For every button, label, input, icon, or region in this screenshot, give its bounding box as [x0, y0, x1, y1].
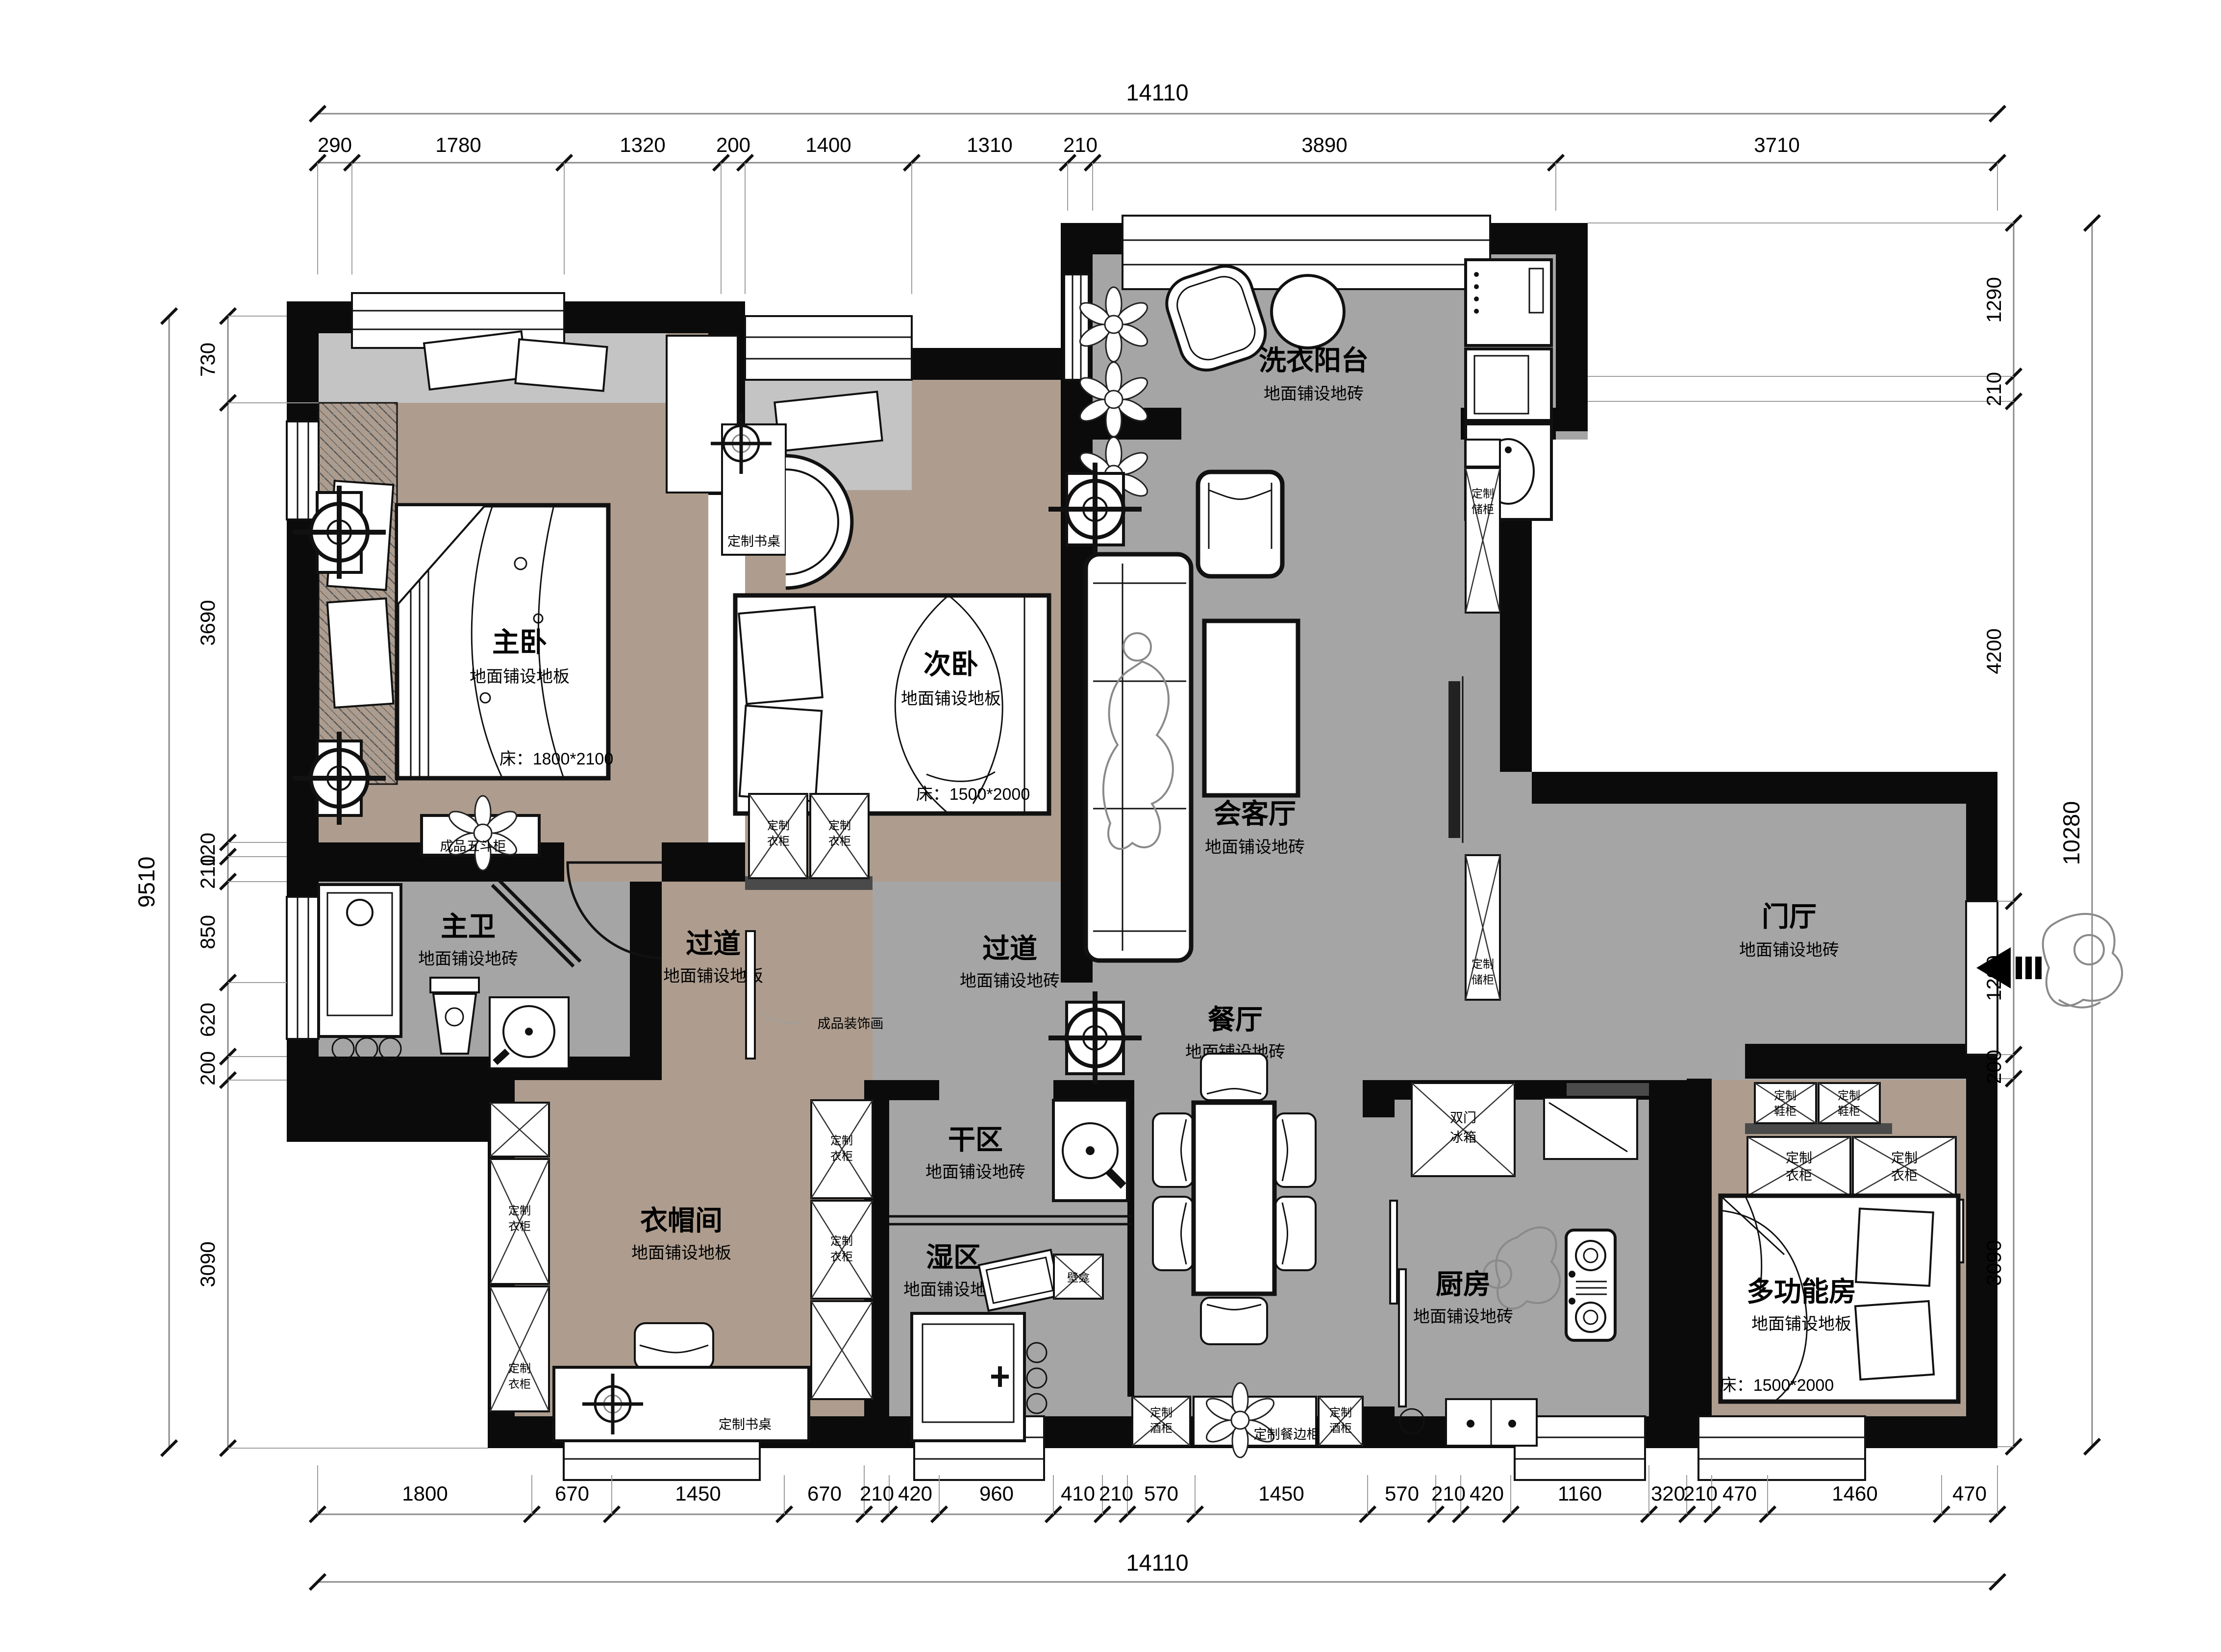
wardrobe-label: 定制 [767, 819, 790, 832]
svg-text:210: 210 [1982, 372, 2005, 406]
wine-cabinet-label: 定制 [1329, 1406, 1352, 1419]
room-floor-label: 地面铺设地板 [631, 1244, 731, 1262]
svg-text:960: 960 [979, 1482, 1014, 1505]
room-floor-label: 地面铺设地砖 [1739, 941, 1839, 960]
room-floor-label: 地面铺设地砖 [925, 1163, 1025, 1182]
bed-pillow [327, 598, 394, 708]
sliding-door [1399, 1269, 1406, 1406]
wardrobe-label: 衣柜 [1786, 1168, 1812, 1183]
svg-text:290: 290 [318, 133, 352, 156]
svg-text:3090: 3090 [196, 1241, 219, 1287]
wine-cabinet-label: 酒柜 [1150, 1422, 1173, 1434]
fridge-label: 冰箱 [1450, 1130, 1476, 1145]
svg-text:410: 410 [1061, 1482, 1095, 1505]
seat-pillow [515, 339, 607, 391]
svg-text:200: 200 [1982, 1050, 2005, 1084]
room-label: 过道 [686, 928, 741, 959]
dimension-bottom: 1800 670 1450 670 210 420 960 410 210 57… [310, 1465, 2005, 1590]
svg-text:570: 570 [1385, 1482, 1419, 1505]
room-label: 厨房 [1436, 1269, 1491, 1300]
svg-text:200: 200 [716, 133, 750, 156]
room-label: 次卧 [923, 649, 978, 680]
svg-text:570: 570 [1144, 1482, 1178, 1505]
room-label: 门厅 [1762, 901, 1817, 932]
wardrobe-label: 衣柜 [508, 1378, 531, 1390]
svg-text:1310: 1310 [967, 133, 1012, 156]
wine-cabinet-label: 酒柜 [1329, 1422, 1352, 1434]
balcony-left-window [1064, 274, 1089, 380]
room-floor-label: 地面铺设地板 [1751, 1315, 1851, 1333]
storage-label: 储柜 [1472, 973, 1494, 986]
bed-pillow [1855, 1301, 1934, 1380]
room-floor-label: 地面铺设地砖 [1205, 838, 1305, 857]
fridge-label: 双门 [1450, 1110, 1476, 1125]
wardrobe-label: 衣柜 [508, 1220, 531, 1233]
svg-text:1780: 1780 [435, 133, 481, 156]
dim-total-bottom: 14110 [1126, 1550, 1188, 1576]
bathtub [319, 885, 401, 1036]
svg-text:1320: 1320 [620, 133, 665, 156]
master-headboard-hatch [319, 403, 397, 784]
room-floor-label: 地面铺设地板 [470, 667, 570, 686]
svg-text:420: 420 [898, 1482, 932, 1505]
room-label: 湿区 [926, 1242, 981, 1273]
coffee-table [1204, 621, 1298, 795]
bed-pillow [739, 607, 823, 704]
svg-text:1450: 1450 [675, 1482, 721, 1505]
dim-total-top: 14110 [1126, 79, 1188, 105]
wardrobe-label: 衣柜 [828, 835, 851, 847]
bath-vanity [490, 997, 569, 1068]
shoe-cabinet-label: 鞋柜 [1838, 1105, 1860, 1117]
fridge: 双门 冰箱 [1412, 1083, 1515, 1176]
wardrobe-label: 定制 [828, 819, 851, 832]
room-label: 多功能房 [1747, 1276, 1856, 1307]
svg-text:210: 210 [1683, 1482, 1718, 1505]
floor-plan-page: 主卧 地面铺设地板 床：1800*2100 成品五斗柜 定制书桌 次卧 地面铺设… [0, 0, 2221, 1652]
svg-text:1450: 1450 [1258, 1482, 1304, 1505]
multi-bottom-window [1698, 1416, 1865, 1480]
seat-pillow [774, 392, 882, 451]
armchair [1198, 472, 1282, 576]
tv [1448, 681, 1460, 838]
dresser-label: 成品五斗柜 [440, 839, 506, 854]
dim-total-right: 10280 [2058, 801, 2084, 865]
svg-text:210: 210 [196, 855, 219, 889]
svg-text:320: 320 [1651, 1482, 1685, 1505]
cloak-wardrobe-left: 定制 衣柜 定制 衣柜 [490, 1103, 549, 1411]
shoe-cabinet-label: 定制 [1838, 1089, 1860, 1102]
shoe-cabinet-label: 定制 [1774, 1089, 1797, 1102]
room-floor-label: 地面铺设地砖 [1413, 1307, 1513, 1326]
storage-label: 储柜 [1472, 503, 1494, 516]
shoe-cabinet-counter [1745, 1123, 1892, 1134]
desk-label: 定制书桌 [727, 534, 780, 549]
room-label: 主卫 [441, 911, 496, 942]
room-label: 衣帽间 [640, 1205, 723, 1236]
svg-text:4200: 4200 [1982, 628, 2005, 674]
svg-text:1400: 1400 [805, 133, 851, 156]
wardrobe-label: 定制 [830, 1234, 853, 1247]
master-left-window [287, 421, 319, 519]
room-floor-label: 地面铺设地板 [901, 690, 1001, 708]
bed-size-label: 床：1500*2000 [916, 785, 1030, 804]
room-label: 干区 [948, 1124, 1003, 1155]
wardrobe-label: 定制 [830, 1134, 853, 1147]
shoe-cabinet-label: 鞋柜 [1774, 1105, 1797, 1117]
room-label: 主卧 [492, 627, 547, 658]
wall-artwork [746, 931, 755, 1059]
kitchen-sink-cabinet [1446, 1399, 1537, 1446]
bed-pillow [740, 706, 822, 801]
dim-labels-top: 290 1780 1320 200 1400 1310 210 3890 371… [318, 133, 1800, 156]
bed-pillow [1856, 1208, 1933, 1286]
dim-labels-left: 730 3690 120 210 850 620 200 3090 [196, 343, 219, 1287]
wardrobe-label: 定制 [508, 1204, 531, 1217]
room-floor-label: 地面铺设地砖 [1264, 385, 1364, 403]
svg-text:3890: 3890 [1301, 133, 1347, 156]
svg-text:1460: 1460 [1832, 1482, 1877, 1505]
wardrobe-label: 衣柜 [1891, 1168, 1918, 1183]
svg-text:420: 420 [1470, 1482, 1504, 1505]
counter [1567, 1083, 1649, 1096]
wardrobe-label: 定制 [1891, 1151, 1918, 1165]
sideboard-label: 定制餐边柜 [1254, 1427, 1320, 1442]
room-label: 餐厅 [1208, 1004, 1263, 1035]
svg-text:3690: 3690 [196, 600, 219, 645]
svg-text:3710: 3710 [1754, 133, 1799, 156]
artwork-label: 成品装饰画 [818, 1016, 884, 1031]
wine-cabinet-label: 定制 [1150, 1406, 1173, 1419]
cloak-wardrobe-right: 定制 衣柜 定制 衣柜 [811, 1100, 873, 1399]
sofa [1086, 554, 1191, 961]
stove [1566, 1230, 1615, 1340]
svg-text:1290: 1290 [1982, 955, 2005, 1001]
svg-text:210: 210 [1063, 133, 1098, 156]
storage-label: 定制 [1472, 958, 1494, 970]
dim-total-left: 9510 [133, 857, 159, 908]
svg-text:470: 470 [1722, 1482, 1757, 1505]
svg-text:210: 210 [1099, 1482, 1133, 1505]
wardrobe-label: 衣柜 [830, 1250, 853, 1263]
svg-text:210: 210 [860, 1482, 894, 1505]
svg-text:3090: 3090 [1982, 1240, 2005, 1285]
niche: 壁龛 [1054, 1255, 1103, 1299]
room-floor-label: 地面铺设地砖 [960, 972, 1060, 990]
bath-left-window [287, 897, 319, 1039]
room-floor-label: 地面铺设地砖 [418, 950, 518, 968]
svg-text:200: 200 [196, 1051, 219, 1085]
svg-text:470: 470 [1952, 1482, 1987, 1505]
dim-labels-bottom: 1800 670 1450 670 210 420 960 410 210 57… [402, 1482, 1987, 1505]
laundry-tub [1272, 275, 1344, 348]
svg-text:1160: 1160 [1558, 1482, 1602, 1505]
floor-plan-drawing: 主卧 地面铺设地板 床：1800*2100 成品五斗柜 定制书桌 次卧 地面铺设… [0, 0, 2221, 1652]
svg-text:850: 850 [196, 915, 219, 949]
room-label: 洗衣阳台 [1259, 345, 1369, 376]
wardrobe-label: 衣柜 [767, 835, 790, 847]
svg-text:1290: 1290 [1982, 277, 2005, 322]
sliding-door [1390, 1201, 1397, 1304]
svg-text:730: 730 [196, 343, 219, 377]
svg-text:1800: 1800 [402, 1482, 448, 1505]
svg-text:620: 620 [196, 1003, 219, 1037]
second-top-window [745, 316, 912, 380]
storage-label: 定制 [1472, 487, 1494, 500]
room-label: 过道 [982, 933, 1037, 964]
bed-size-label: 床：1500*2000 [1720, 1376, 1834, 1395]
wardrobe-label: 定制 [1786, 1151, 1812, 1165]
dining-table [1194, 1103, 1274, 1294]
wardrobe-label: 定制 [508, 1362, 531, 1375]
room-label: 会客厅 [1214, 798, 1296, 829]
svg-text:210: 210 [1431, 1482, 1466, 1505]
svg-text:670: 670 [555, 1482, 589, 1505]
bed-size-label: 床：1800*2100 [499, 750, 614, 768]
wardrobe-label: 衣柜 [830, 1150, 853, 1162]
desk-label: 定制书桌 [719, 1417, 772, 1432]
person-figure [2043, 914, 2122, 1008]
niche-label: 壁龛 [1067, 1271, 1090, 1284]
svg-text:670: 670 [807, 1482, 842, 1505]
